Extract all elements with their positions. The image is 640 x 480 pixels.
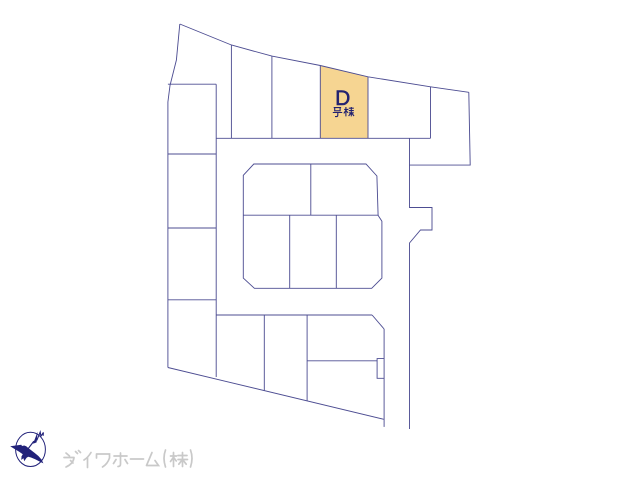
svg-text:D: D xyxy=(335,87,350,110)
